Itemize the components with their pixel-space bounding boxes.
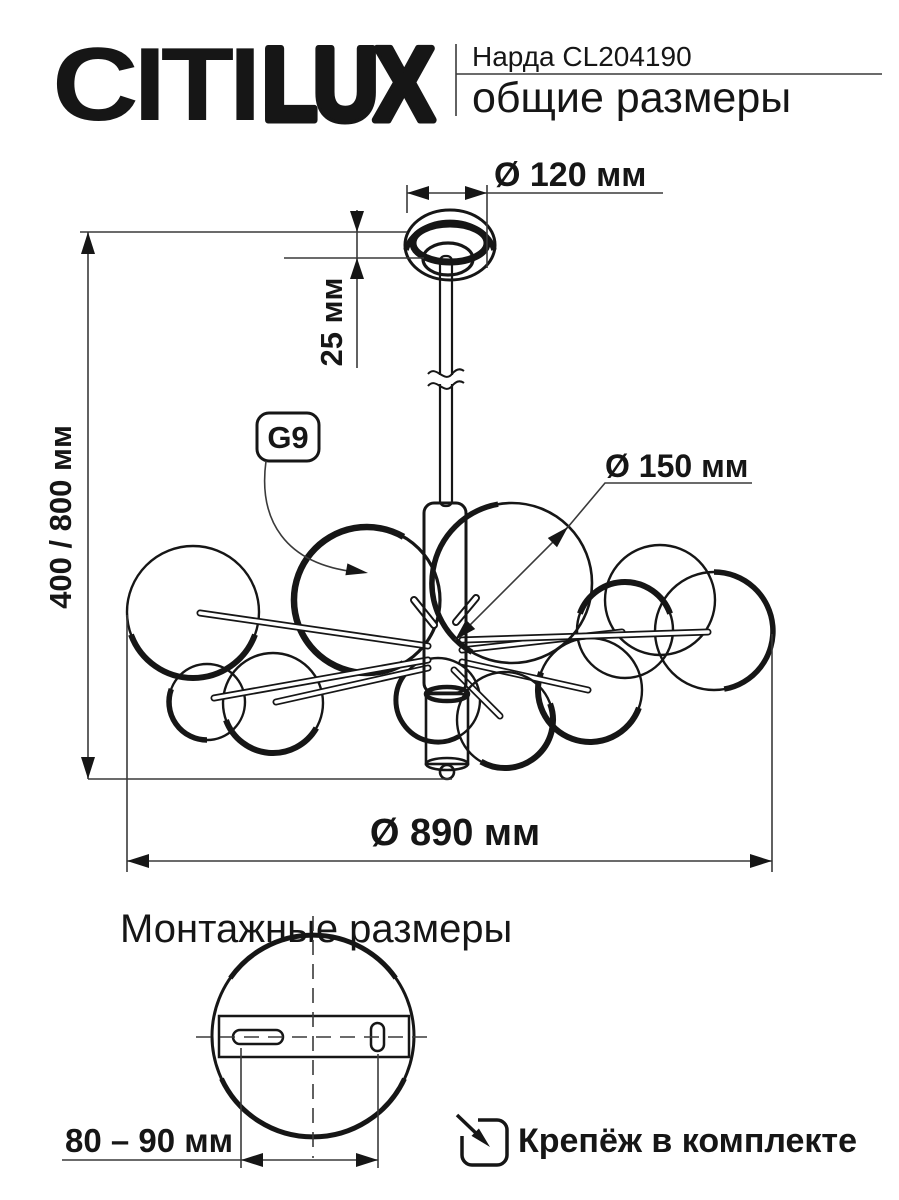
model-title: Нарда CL204190 — [472, 41, 692, 72]
dim-globe-diameter: Ø 150 мм — [455, 448, 752, 640]
finial-ball — [440, 765, 454, 779]
arrowhead — [407, 186, 429, 200]
glass-sphere — [457, 672, 553, 768]
canopy-drawing — [405, 210, 495, 280]
arrowhead — [81, 232, 95, 254]
arm-tube — [200, 613, 428, 646]
dim-canopy-diameter-label: Ø 120 мм — [494, 156, 646, 194]
dim-overall-diameter-label: Ø 890 мм — [370, 812, 540, 854]
chandelier-arms — [200, 598, 708, 716]
citilux-logo: CITI LUX — [52, 27, 434, 143]
arrowhead — [750, 854, 772, 868]
arrowhead — [127, 854, 149, 868]
arrowhead — [350, 211, 364, 232]
logo-citi-text: CITI — [52, 27, 256, 143]
mounting-section-title: Монтажные размеры — [120, 907, 512, 951]
dimension-sheet: CITI LUX Нарда CL204190 общие размеры — [0, 0, 899, 1200]
dim-canopy-drop: 25 мм — [80, 210, 424, 368]
dim-canopy-drop-label: 25 мм — [314, 278, 349, 367]
logo-lux-text: LUX — [262, 27, 434, 143]
arrowhead — [241, 1153, 263, 1167]
arrowhead — [465, 186, 487, 200]
hardware-included-icon — [450, 1108, 507, 1165]
leader-line — [455, 483, 752, 640]
chandelier-drawing — [127, 503, 773, 779]
dim-height-range: 400 / 800 мм — [43, 232, 452, 779]
pendant-rod — [428, 256, 464, 506]
title-block: Нарда CL204190 общие размеры — [456, 41, 882, 122]
hardware-note-label: Крепёж в комплекте — [518, 1122, 857, 1160]
dim-hole-spacing-label: 80 – 90 мм — [65, 1122, 233, 1159]
dim-canopy-diameter: Ø 120 мм — [407, 156, 663, 268]
arrowhead — [81, 757, 95, 779]
hardware-note: Крепёж в комплекте — [450, 1108, 857, 1165]
drawing-subtitle: общие размеры — [472, 74, 791, 122]
arrowhead — [356, 1153, 378, 1167]
arrowhead — [345, 563, 368, 575]
glass-sphere — [127, 546, 259, 678]
arrowhead — [350, 258, 364, 279]
g9-label: G9 — [267, 420, 308, 455]
lower-cylinder — [426, 694, 468, 764]
drawing-canvas: CITI LUX Нарда CL204190 общие размеры — [0, 0, 899, 1200]
dim-height-range-label: 400 / 800 мм — [43, 425, 78, 609]
dim-hole-spacing: 80 – 90 мм — [62, 1048, 378, 1168]
dim-globe-diameter-label: Ø 150 мм — [605, 448, 748, 484]
